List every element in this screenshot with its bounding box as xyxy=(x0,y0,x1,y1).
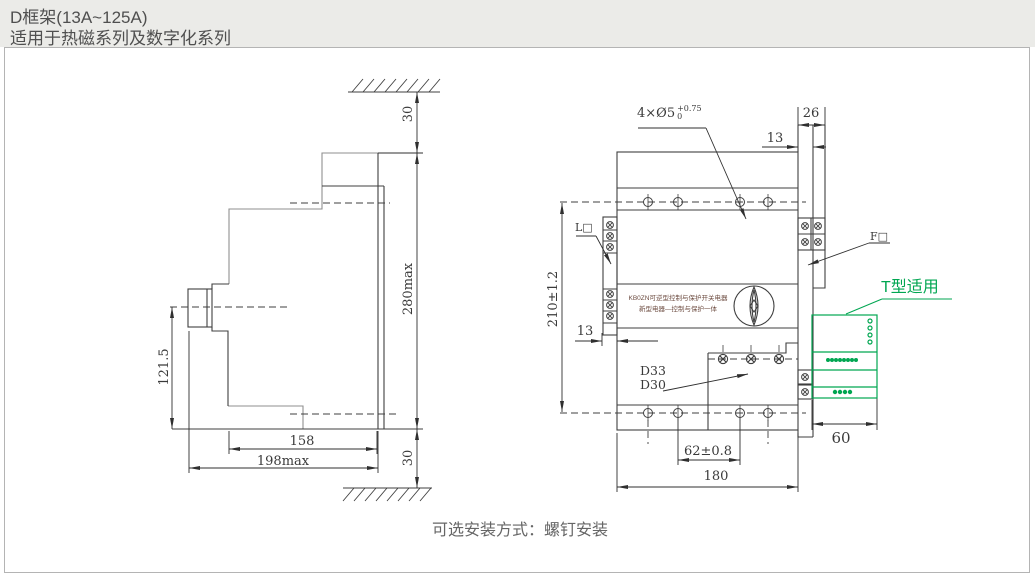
hole-callout-text: 4×Ø5 xyxy=(637,107,675,120)
hole-callout-tolerance: +0.75 0 xyxy=(677,105,702,121)
faceplate-text-line2: 新型电器—控制与保护一体 xyxy=(619,306,737,315)
dim-module-width: 60 xyxy=(818,429,864,447)
dim-depth-max: 198max xyxy=(243,453,323,469)
centerlines xyxy=(170,202,806,444)
label-right-terminal: F□ xyxy=(870,230,896,243)
dim-terminal-offset: 13 xyxy=(566,323,604,339)
label-d30: D30 xyxy=(640,378,676,392)
module-label: T型适用 xyxy=(881,278,971,298)
t-module-dots xyxy=(826,358,858,394)
side-view-gray-profile xyxy=(228,153,378,429)
dim-top-gap: 30 xyxy=(398,96,418,132)
dim-bottom-gap: 30 xyxy=(398,440,418,476)
front-view-outline xyxy=(603,125,825,437)
technical-drawing xyxy=(0,0,1035,578)
dim-accessory-offset: 13 xyxy=(757,130,793,146)
label-d33: D33 xyxy=(640,364,676,378)
dim-height-front: 210±1.2 xyxy=(545,263,561,335)
dim-depth: 158 xyxy=(272,433,332,449)
dim-center-height: 121.5 xyxy=(156,344,172,390)
label-left-terminal: L□ xyxy=(575,221,601,234)
dim-width: 180 xyxy=(686,468,746,484)
t-module xyxy=(812,299,952,398)
faceplate-text-line1: KB0ZN可逆型控制与保护开关电器 xyxy=(619,295,737,304)
dim-height-max: 280max xyxy=(400,259,416,319)
mounting-caption: 可选安装方式：螺钉安装 xyxy=(330,520,710,542)
hole-callout: 4×Ø5 +0.75 0 xyxy=(637,103,702,123)
dim-hole-spacing: 62±0.8 xyxy=(668,443,748,459)
dim-accessory-width: 26 xyxy=(791,105,831,121)
